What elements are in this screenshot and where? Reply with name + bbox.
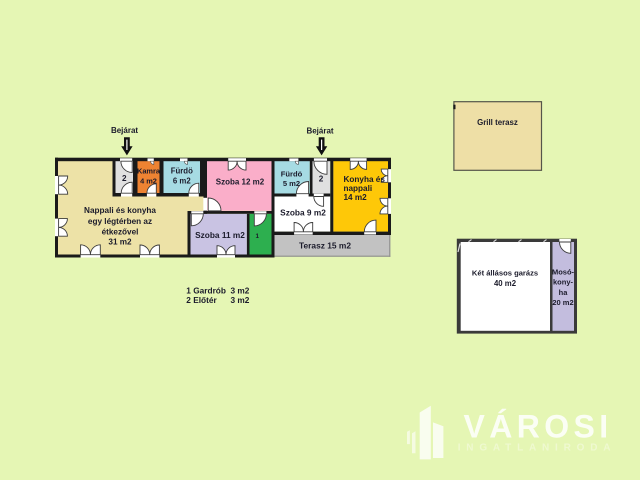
- svg-text:Szoba 9 m2: Szoba 9 m2: [280, 207, 326, 217]
- svg-text:3 m2: 3 m2: [231, 285, 250, 295]
- svg-text:Fürdö: Fürdö: [171, 166, 193, 175]
- svg-text:nappali: nappali: [344, 184, 373, 193]
- svg-text:5 m2: 5 m2: [283, 179, 300, 188]
- svg-text:Két állásos garázs: Két állásos garázs: [472, 268, 538, 277]
- svg-text:Szoba 11 m2: Szoba 11 m2: [195, 230, 245, 240]
- svg-text:étkezővel: étkezővel: [102, 227, 139, 236]
- svg-text:VÁROSI: VÁROSI: [463, 409, 612, 445]
- svg-text:Kamra: Kamra: [137, 166, 161, 175]
- svg-text:6 m2: 6 m2: [173, 177, 191, 186]
- svg-text:Konyha és: Konyha és: [344, 175, 386, 184]
- svg-text:Nappali és konyha: Nappali és konyha: [84, 206, 156, 215]
- svg-text:egy légtérben az: egy légtérben az: [88, 217, 152, 226]
- svg-text:1 Gardrób: 1 Gardrób: [186, 285, 226, 295]
- svg-text:Bejárat: Bejárat: [111, 126, 138, 135]
- svg-text:14 m2: 14 m2: [344, 193, 368, 202]
- svg-text:2 Előtér: 2 Előtér: [186, 295, 217, 305]
- svg-text:31 m2: 31 m2: [108, 237, 132, 246]
- svg-text:Grill terasz: Grill terasz: [477, 118, 518, 127]
- svg-text:Terasz 15 m2: Terasz 15 m2: [299, 241, 351, 251]
- svg-text:Bejárat: Bejárat: [306, 127, 333, 136]
- svg-text:2: 2: [319, 175, 324, 184]
- svg-text:20 m2: 20 m2: [552, 298, 573, 307]
- svg-text:3 m2: 3 m2: [231, 295, 250, 305]
- svg-text:Szoba 12 m2: Szoba 12 m2: [216, 178, 265, 187]
- svg-text:4 m2: 4 m2: [140, 176, 157, 185]
- svg-text:1: 1: [256, 233, 260, 240]
- svg-text:kony-: kony-: [553, 278, 574, 287]
- svg-text:40 m2: 40 m2: [494, 279, 517, 288]
- svg-text:Mosó-: Mosó-: [552, 267, 575, 276]
- svg-text:INGATLANIRODA: INGATLANIRODA: [458, 443, 617, 454]
- svg-text:ha: ha: [559, 288, 569, 297]
- svg-text:2: 2: [122, 174, 127, 183]
- svg-text:Fürdö: Fürdö: [281, 170, 303, 179]
